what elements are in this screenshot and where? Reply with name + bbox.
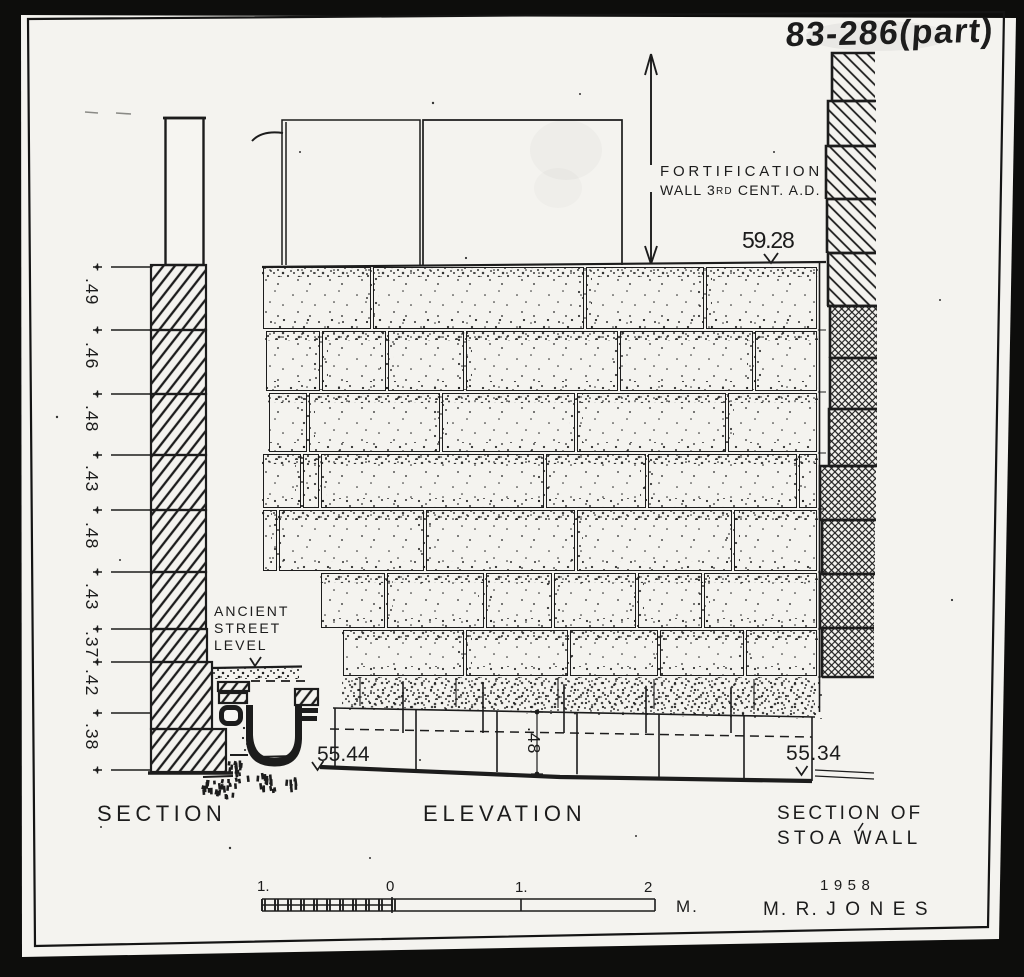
svg-text:.48: .48 <box>524 727 544 754</box>
svg-text:59.28: 59.28 <box>742 227 794 253</box>
svg-text:STREET: STREET <box>214 620 281 636</box>
svg-text:1958: 1958 <box>820 877 875 894</box>
svg-text:.49: .49 <box>82 278 102 305</box>
svg-text:2: 2 <box>644 879 652 896</box>
svg-text:FORTIFICATION: FORTIFICATION <box>660 163 823 180</box>
svg-text:0: 0 <box>386 878 394 895</box>
svg-text:1.: 1. <box>257 878 270 895</box>
svg-text:SECTION OF: SECTION OF <box>777 803 923 824</box>
svg-text:.48: .48 <box>82 522 102 549</box>
svg-text:M.: M. <box>676 897 699 916</box>
svg-text:1.: 1. <box>515 879 528 896</box>
svg-text:LEVEL: LEVEL <box>214 637 268 653</box>
svg-text:.43: .43 <box>82 465 102 492</box>
svg-text:SECTION: SECTION <box>97 801 226 826</box>
svg-text:ANCIENT: ANCIENT <box>214 603 289 619</box>
svg-text:.42: .42 <box>82 669 102 696</box>
svg-text:.43: .43 <box>82 583 102 610</box>
svg-text:M. R. J O N E S: M. R. J O N E S <box>763 899 930 920</box>
svg-text:55.44: 55.44 <box>317 743 370 766</box>
svg-text:STOA WALL: STOA WALL <box>777 828 921 849</box>
svg-text:.38: .38 <box>82 723 102 750</box>
svg-text:ELEVATION: ELEVATION <box>423 801 586 826</box>
svg-text:55.34: 55.34 <box>786 742 842 765</box>
svg-text:WALL 3RD CENT. A.D.: WALL 3RD CENT. A.D. <box>660 182 821 198</box>
svg-text:83-286(part): 83-286(part) <box>784 12 995 54</box>
svg-text:.48: .48 <box>82 405 102 432</box>
svg-text:.37: .37 <box>82 631 102 658</box>
svg-text:.46: .46 <box>82 342 102 369</box>
